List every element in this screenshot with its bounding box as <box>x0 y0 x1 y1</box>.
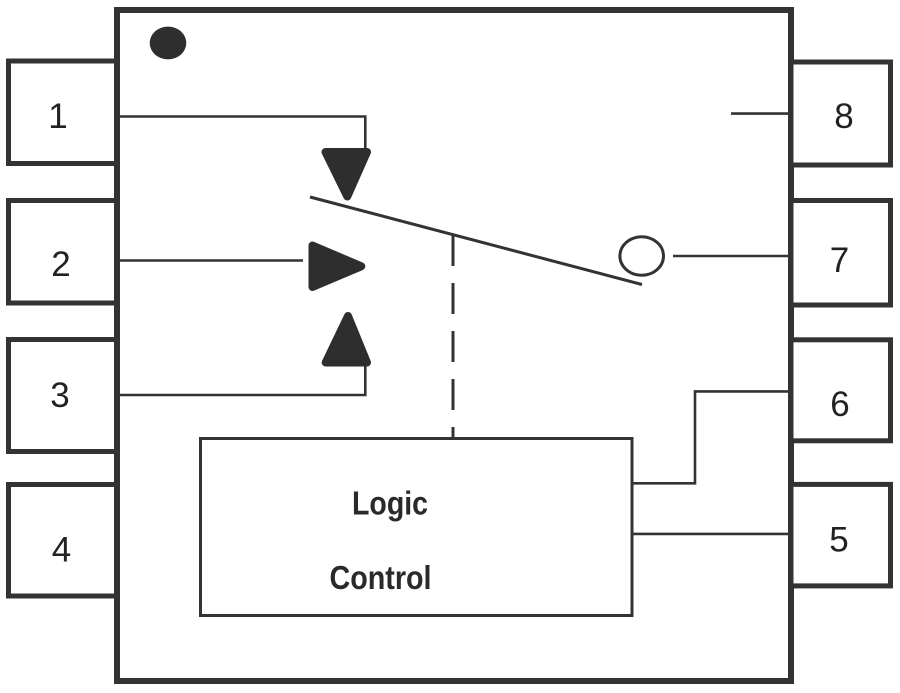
svg-text:2: 2 <box>51 245 70 284</box>
svg-text:6: 6 <box>830 385 849 424</box>
svg-text:7: 7 <box>830 241 849 280</box>
svg-text:5: 5 <box>829 521 848 560</box>
svg-text:8: 8 <box>834 97 853 136</box>
svg-text:Logic: Logic <box>352 485 428 522</box>
svg-text:1: 1 <box>48 97 67 136</box>
svg-text:3: 3 <box>50 376 69 415</box>
svg-text:Control: Control <box>330 559 432 596</box>
svg-text:4: 4 <box>52 531 71 570</box>
